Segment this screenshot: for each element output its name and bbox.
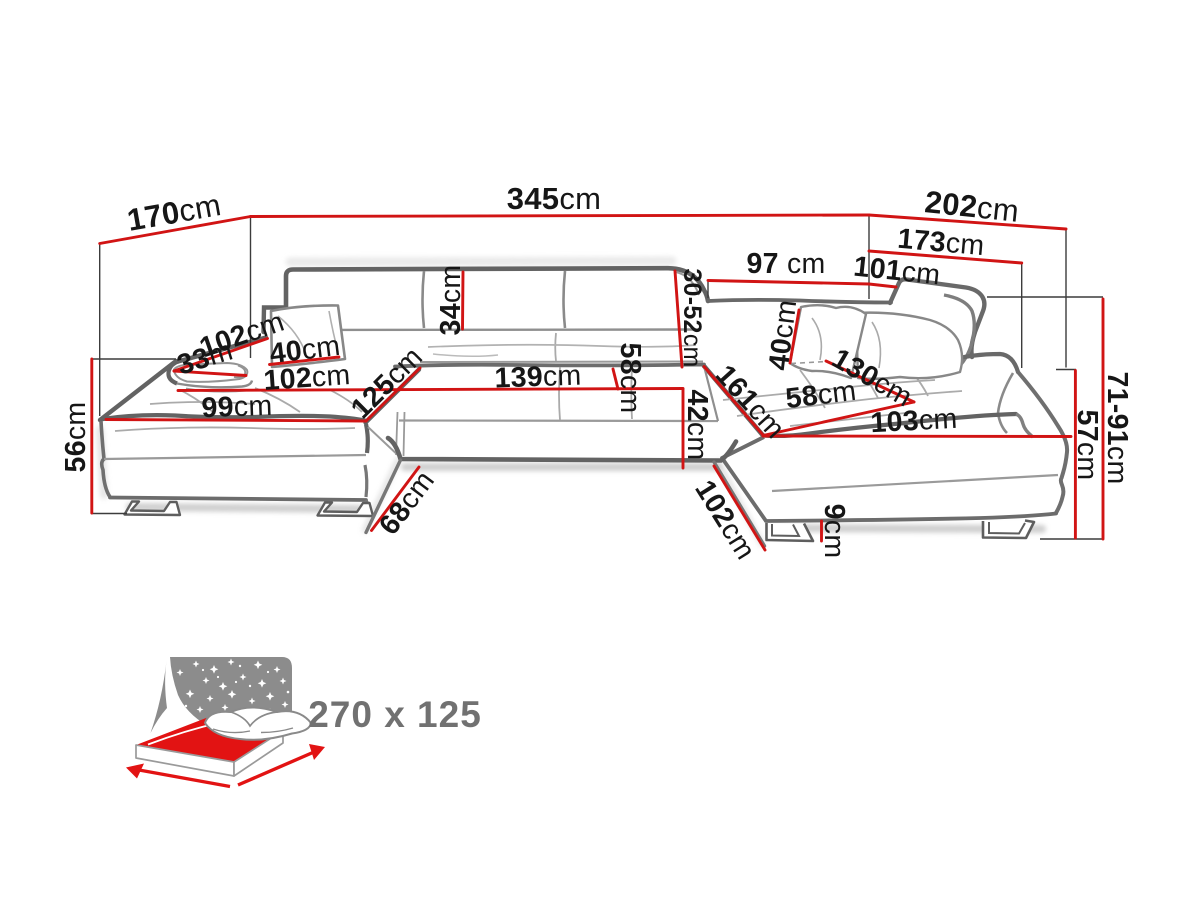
svg-text:103cm: 103cm [870, 403, 959, 440]
svg-text:97 cm: 97 cm [746, 248, 825, 280]
svg-text:71-91cm: 71-91cm [1101, 372, 1133, 485]
svg-text:42cm: 42cm [681, 390, 713, 461]
svg-text:345cm: 345cm [507, 181, 602, 216]
svg-text:99cm: 99cm [201, 390, 273, 424]
svg-text:30-52cm: 30-52cm [678, 268, 706, 367]
svg-text:56cm: 56cm [60, 402, 92, 473]
svg-text:139cm: 139cm [494, 359, 582, 394]
svg-text:9cm: 9cm [818, 504, 850, 559]
svg-text:57cm: 57cm [1071, 410, 1103, 481]
svg-text:270 x 125: 270 x 125 [308, 694, 482, 735]
svg-text:102cm: 102cm [262, 359, 351, 397]
svg-text:58cm: 58cm [614, 343, 646, 414]
svg-text:34cm: 34cm [435, 265, 467, 336]
